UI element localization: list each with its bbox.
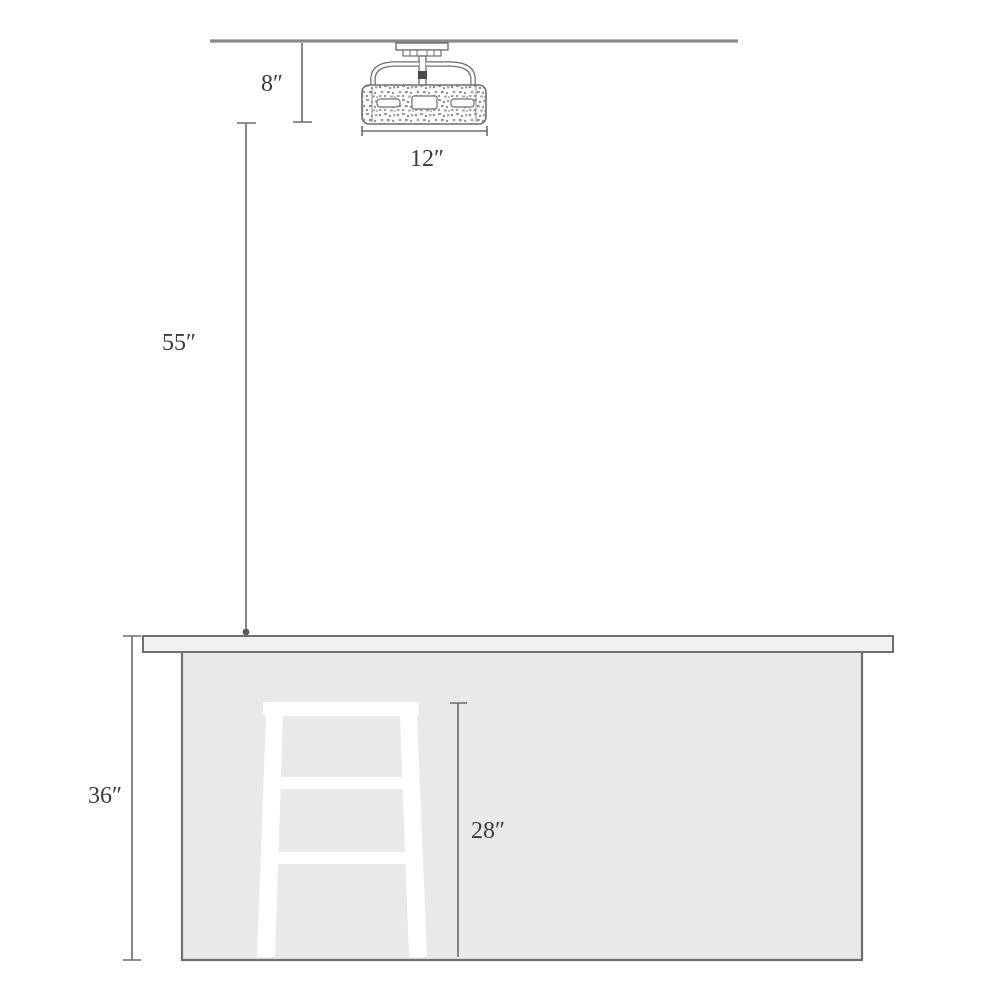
stool-stretcher-bottom — [274, 852, 408, 864]
dimension-diagram: 8″ — [0, 0, 1000, 1000]
bulb-center-icon — [412, 96, 437, 109]
bulb-left-icon — [377, 99, 400, 107]
dim-36in-label: 36″ — [88, 783, 122, 809]
dimension-12in: 12″ — [362, 126, 487, 172]
dim-55in-label: 55″ — [162, 330, 196, 356]
fixture-canopy-icon — [396, 43, 448, 50]
diagram-canvas: 8″ — [0, 0, 1000, 1000]
counter-body — [182, 651, 862, 960]
light-fixture — [362, 43, 486, 124]
fixture-arm-right — [426, 64, 473, 86]
fixture-arm-left — [373, 64, 419, 86]
bulb-right-icon — [451, 99, 474, 107]
dim-12in-label: 12″ — [410, 146, 444, 172]
dimension-8in: 8″ — [261, 43, 312, 122]
fixture-stem-node — [418, 71, 427, 79]
countertop — [143, 636, 893, 652]
stool-seat — [263, 702, 419, 716]
dim-8in-label: 8″ — [261, 71, 283, 97]
dim-28in-label: 28″ — [471, 818, 505, 844]
dim-55in-end-dot — [243, 629, 250, 636]
stool-stretcher-top — [281, 777, 403, 789]
dimension-55in: 55″ — [162, 123, 256, 635]
dimension-36in: 36″ — [88, 636, 141, 960]
fixture-canopy-step — [403, 50, 441, 56]
